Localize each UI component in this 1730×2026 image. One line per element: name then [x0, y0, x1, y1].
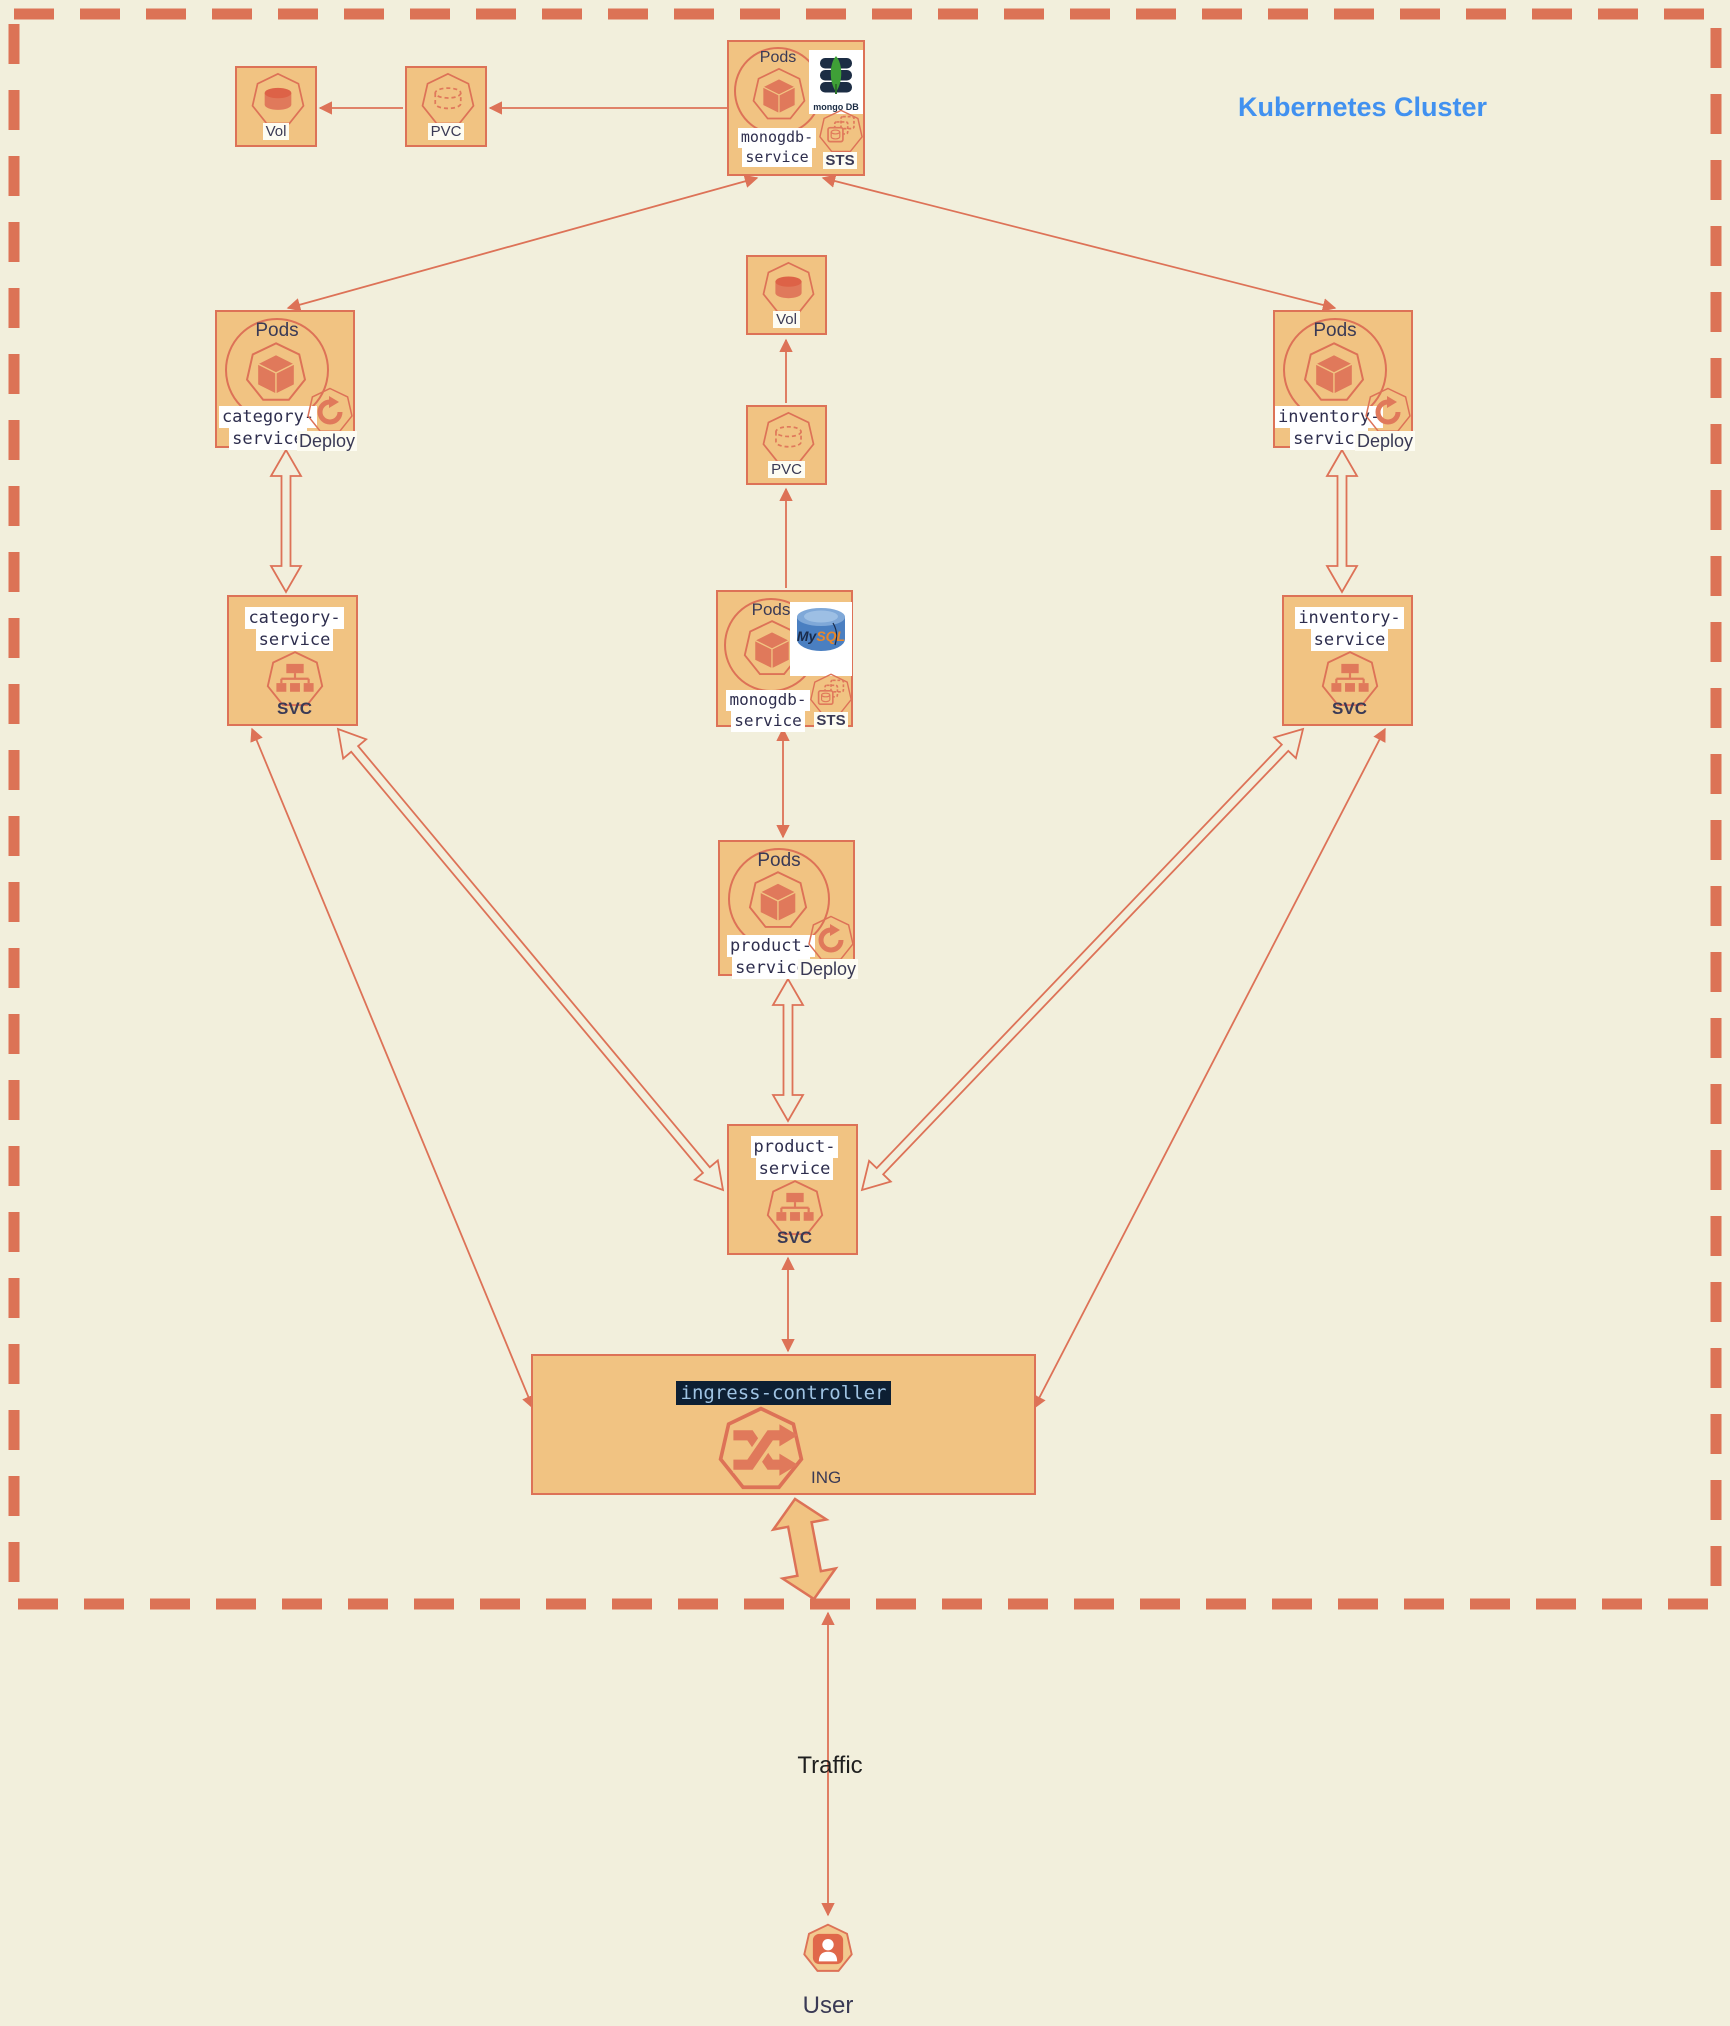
connector-block-arrow — [862, 729, 1303, 1190]
connector-arrow — [252, 729, 533, 1408]
node-product-svc: product- service SVC — [727, 1124, 858, 1255]
node-mysql-statefulset: Pods MySQL monogdb- service STS — [716, 590, 853, 727]
pods-label: Pods — [225, 320, 329, 342]
service-name-label: monogdb- service — [729, 128, 825, 167]
connector-arrow — [823, 178, 1335, 308]
node-vol-top: Vol — [235, 66, 317, 147]
service-name-label: monogdb- service — [718, 690, 818, 732]
node-category-pods: Pods category- service Deploy — [215, 310, 355, 448]
mongodb-leaf-db-icon — [812, 52, 860, 98]
deploy-icon — [305, 386, 355, 436]
connector-block-arrow — [1327, 450, 1357, 592]
ingress-icon — [715, 1404, 807, 1496]
svc-label: SVC — [229, 699, 360, 719]
deploy-icon — [1363, 386, 1413, 436]
pvc-label: PVC — [748, 461, 825, 478]
service-name-label: category- service — [229, 607, 360, 651]
statefulset-icon — [817, 108, 865, 156]
pods-cube-icon — [750, 66, 808, 124]
node-pvc-mid: PVC — [746, 405, 827, 485]
connector-block-arrow — [773, 979, 803, 1121]
deploy-icon — [806, 914, 856, 964]
volume-icon — [249, 71, 307, 129]
node-inventory-svc: inventory- service SVC — [1282, 595, 1413, 726]
kubernetes-architecture-diagram: Kubernetes Cluster Pods mongo DB monogdb… — [0, 0, 1730, 2026]
connector-arrow — [288, 178, 757, 308]
ing-label: ING — [809, 1468, 859, 1488]
user-icon — [801, 1922, 855, 1976]
connector-block-arrow — [338, 729, 723, 1190]
mysql-logo: MySQL — [790, 602, 852, 676]
mysql-logo-text: MySQL — [790, 628, 852, 644]
connector-block-arrow — [773, 1499, 835, 1599]
node-mongodb-statefulset: Pods mongo DB monogdb- service STS — [727, 40, 865, 176]
node-pvc-top: PVC — [405, 66, 487, 147]
pvc-icon — [760, 410, 817, 467]
traffic-label: Traffic — [768, 1752, 892, 1780]
volume-icon — [760, 260, 817, 317]
deploy-label: Deploy — [798, 959, 856, 980]
node-product-pods: Pods product- service Deploy — [718, 840, 855, 976]
pods-cube-icon — [746, 869, 810, 933]
svc-label: SVC — [729, 1228, 860, 1248]
svc-label: SVC — [1284, 699, 1415, 719]
ingress-name-label: ingress-controller — [533, 1382, 1034, 1404]
node-ingress-controller: ingress-controller ING — [531, 1354, 1036, 1495]
sts-label: STS — [804, 712, 858, 729]
pods-cube-icon — [1301, 340, 1367, 406]
deploy-label: Deploy — [297, 431, 355, 452]
kubernetes-cluster-title: Kubernetes Cluster — [1238, 92, 1487, 123]
service-name-line1: monogdb- — [738, 128, 816, 148]
node-inventory-pods: Pods inventory- service Deploy — [1273, 310, 1413, 448]
deploy-label: Deploy — [1355, 431, 1413, 452]
pvc-icon — [419, 71, 477, 129]
user-label: User — [788, 1992, 868, 2020]
service-name-label: inventory- service — [1284, 607, 1415, 651]
service-name-label: product- service — [729, 1136, 860, 1180]
mongodb-logo: mongo DB — [809, 50, 863, 114]
pvc-label: PVC — [407, 123, 485, 140]
node-vol-mid: Vol — [746, 255, 827, 335]
vol-label: Vol — [237, 123, 315, 140]
connector-block-arrow — [271, 450, 301, 592]
vol-label: Vol — [748, 311, 825, 328]
sts-label: STS — [813, 152, 867, 169]
pods-cube-icon — [243, 340, 309, 406]
service-name-line2: service — [742, 148, 811, 168]
connector-layer — [0, 0, 1730, 2026]
node-category-svc: category- service SVC — [227, 595, 358, 726]
connector-arrow — [1034, 729, 1385, 1408]
pods-label: Pods — [1283, 320, 1387, 342]
